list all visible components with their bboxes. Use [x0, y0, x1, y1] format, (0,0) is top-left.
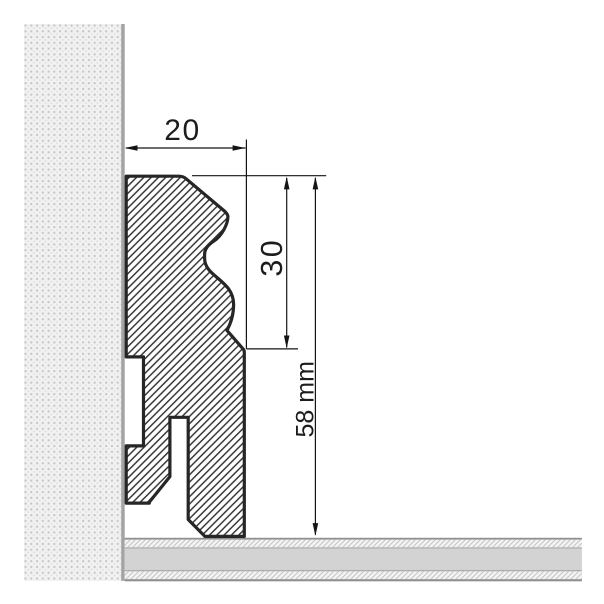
- svg-text:58 mm: 58 mm: [291, 361, 319, 437]
- svg-text:20: 20: [164, 114, 201, 147]
- svg-text:30: 30: [255, 238, 289, 277]
